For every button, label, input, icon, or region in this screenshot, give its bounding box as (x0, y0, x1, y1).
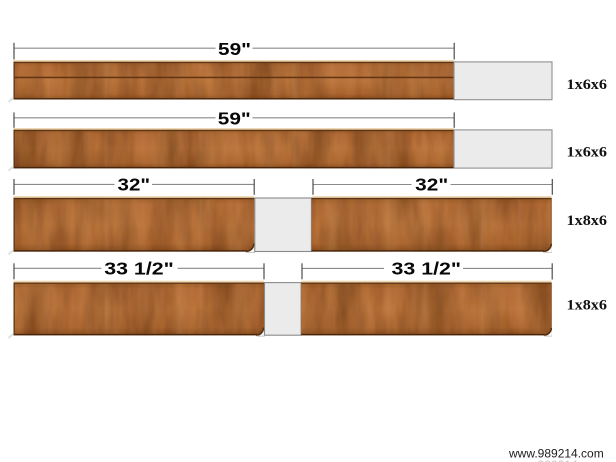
svg-text:1x6x6: 1x6x6 (567, 77, 608, 93)
svg-text:33 1/2": 33 1/2" (392, 259, 462, 279)
svg-text:www.989214.com: www.989214.com (508, 458, 604, 462)
svg-text:32": 32" (415, 175, 448, 195)
svg-text:1x8x6: 1x8x6 (567, 297, 608, 313)
svg-text:1x6x6: 1x6x6 (567, 145, 608, 161)
svg-text:59": 59" (218, 109, 251, 129)
svg-text:59": 59" (218, 39, 251, 59)
svg-text:32": 32" (118, 175, 151, 195)
svg-text:1x8x6: 1x8x6 (567, 213, 608, 229)
svg-text:33 1/2": 33 1/2" (104, 259, 174, 279)
